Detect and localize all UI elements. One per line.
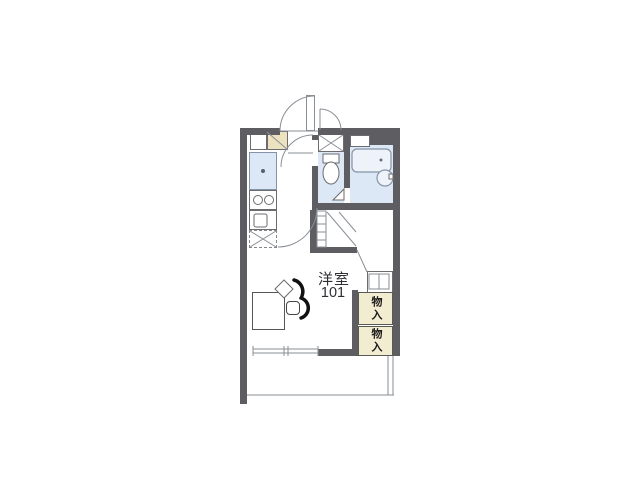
bath-counter	[350, 135, 370, 147]
room-number-label: 101	[313, 285, 353, 301]
storage-lower-label: 物入	[370, 328, 381, 354]
balcony-outline	[247, 356, 394, 395]
washing-machine-space	[249, 230, 277, 248]
closet-shelf-lines	[317, 216, 326, 240]
balcony-window-lines	[253, 349, 318, 353]
kitchen-sink	[249, 210, 277, 230]
chair-arc-upper	[294, 280, 303, 296]
washer-pan	[318, 134, 344, 152]
chair-arc-lower	[301, 298, 308, 318]
outer-wall-top-right	[318, 128, 400, 135]
closet-bottom-wall	[310, 247, 357, 253]
toilet-left-wall-top	[312, 135, 318, 140]
bed	[252, 292, 285, 330]
chair	[286, 301, 300, 315]
entrance-door-panel	[306, 95, 315, 131]
storage-upper-label: 物入	[370, 296, 381, 322]
entrance-subdoor-swing	[320, 109, 341, 130]
bath-top-wall-stub	[370, 135, 393, 145]
floor-plan: 物入 物入 洋室 101	[0, 0, 640, 480]
toilet-bath-wall	[344, 135, 350, 188]
outer-wall-left	[240, 128, 247, 404]
storage-upper: 物入	[358, 292, 393, 325]
room-side-window	[367, 271, 393, 293]
plan-linework	[0, 0, 640, 480]
nook-diagonal	[357, 250, 367, 272]
storage-lower: 物入	[358, 326, 393, 356]
water-area-bottom-wall	[312, 203, 393, 210]
closet-left-wall	[310, 210, 317, 250]
outer-wall-top-left	[240, 128, 280, 135]
closet-shelf-column	[317, 211, 326, 247]
closet-door-diagonal	[327, 212, 356, 246]
toilet-left-wall-bottom	[312, 166, 318, 205]
outer-wall-right	[393, 128, 400, 356]
refrigerator-space	[249, 152, 277, 190]
stove-unit	[249, 190, 277, 210]
balcony-window-ticks	[253, 346, 318, 356]
